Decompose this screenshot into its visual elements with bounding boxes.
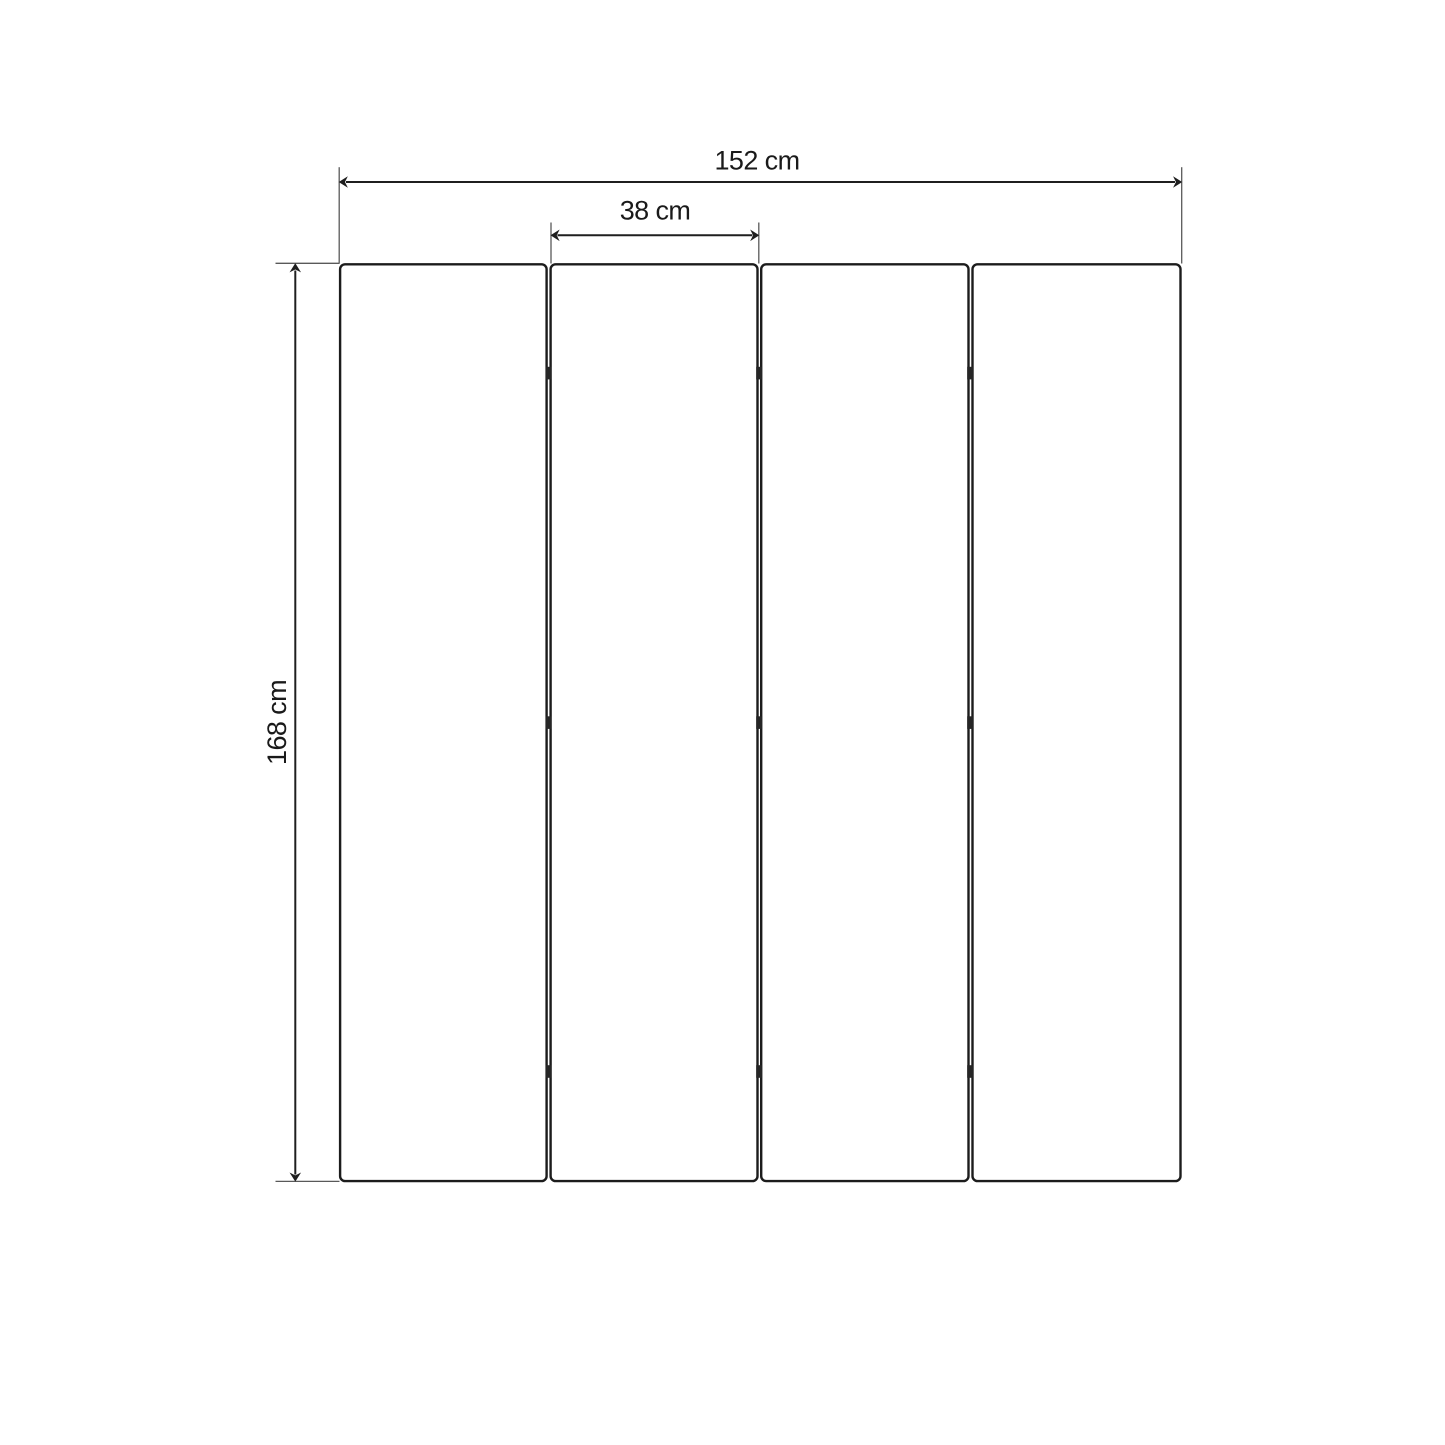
svg-text:38 cm: 38 cm bbox=[620, 196, 691, 226]
svg-text:168 cm: 168 cm bbox=[262, 680, 292, 765]
svg-text:152 cm: 152 cm bbox=[715, 146, 800, 176]
